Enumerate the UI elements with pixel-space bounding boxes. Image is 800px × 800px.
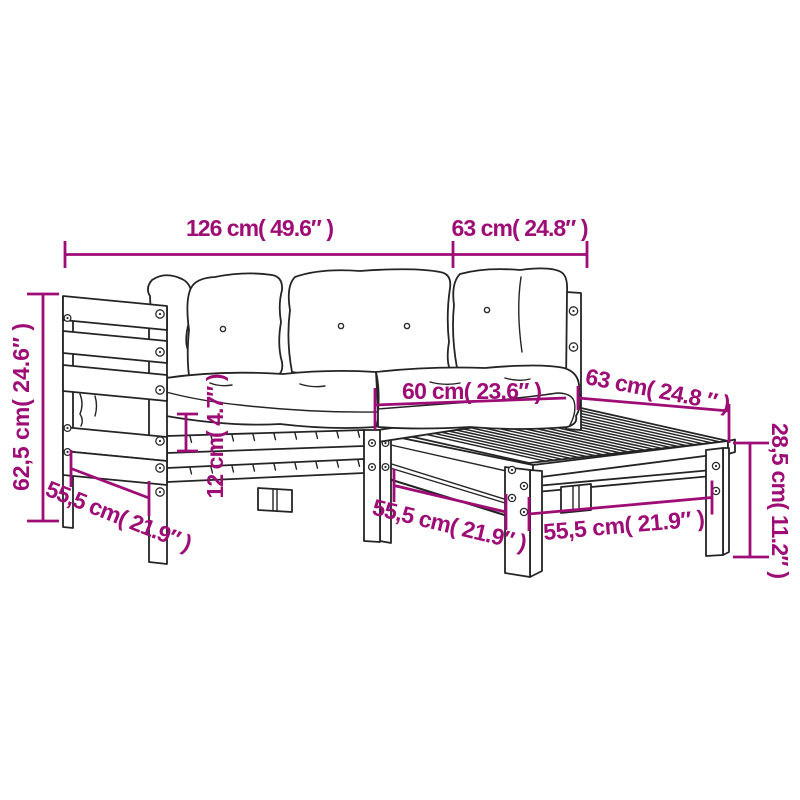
svg-text:12 cm( 4.7″ ): 12 cm( 4.7″ ) xyxy=(202,374,228,499)
svg-text:63 cm( 24.8″ ): 63 cm( 24.8″ ) xyxy=(452,215,589,241)
svg-text:126 cm( 49.6″ ): 126 cm( 49.6″ ) xyxy=(186,215,334,241)
svg-text:60 cm( 23.6″ ): 60 cm( 23.6″ ) xyxy=(402,378,542,404)
svg-text:62,5 cm( 24.6″ ): 62,5 cm( 24.6″ ) xyxy=(8,323,34,491)
svg-text:28,5 cm( 11.2″ ): 28,5 cm( 11.2″ ) xyxy=(767,423,793,579)
